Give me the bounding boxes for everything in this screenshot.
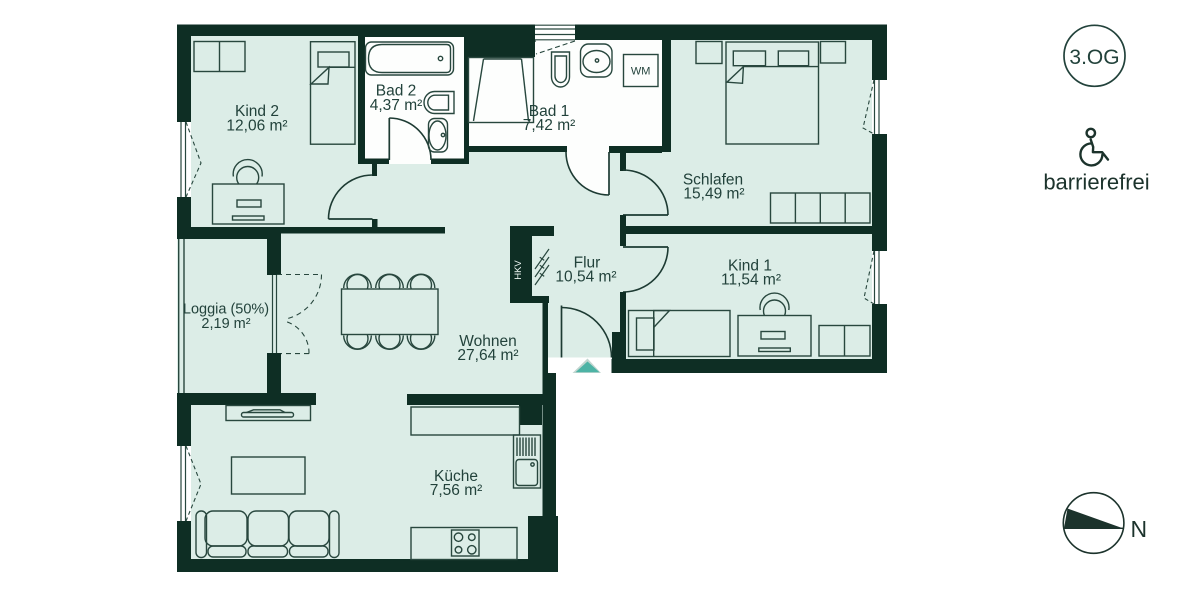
svg-text:WM: WM — [631, 66, 651, 78]
svg-text:2,19 m²: 2,19 m² — [201, 316, 250, 332]
svg-text:11,54 m²: 11,54 m² — [721, 272, 781, 289]
svg-text:7,56 m²: 7,56 m² — [430, 482, 483, 499]
svg-text:3.OG: 3.OG — [1069, 46, 1119, 69]
svg-text:7,42 m²: 7,42 m² — [523, 117, 576, 134]
svg-text:15,49 m²: 15,49 m² — [683, 186, 744, 203]
svg-text:27,64 m²: 27,64 m² — [457, 347, 518, 364]
svg-text:4,37 m²: 4,37 m² — [370, 97, 423, 114]
svg-text:10,54 m²: 10,54 m² — [555, 269, 616, 286]
svg-text:12,06 m²: 12,06 m² — [226, 118, 287, 135]
svg-text:barrierefrei: barrierefrei — [1043, 170, 1149, 195]
svg-text:HKV: HKV — [513, 260, 524, 280]
svg-text:N: N — [1131, 516, 1148, 542]
